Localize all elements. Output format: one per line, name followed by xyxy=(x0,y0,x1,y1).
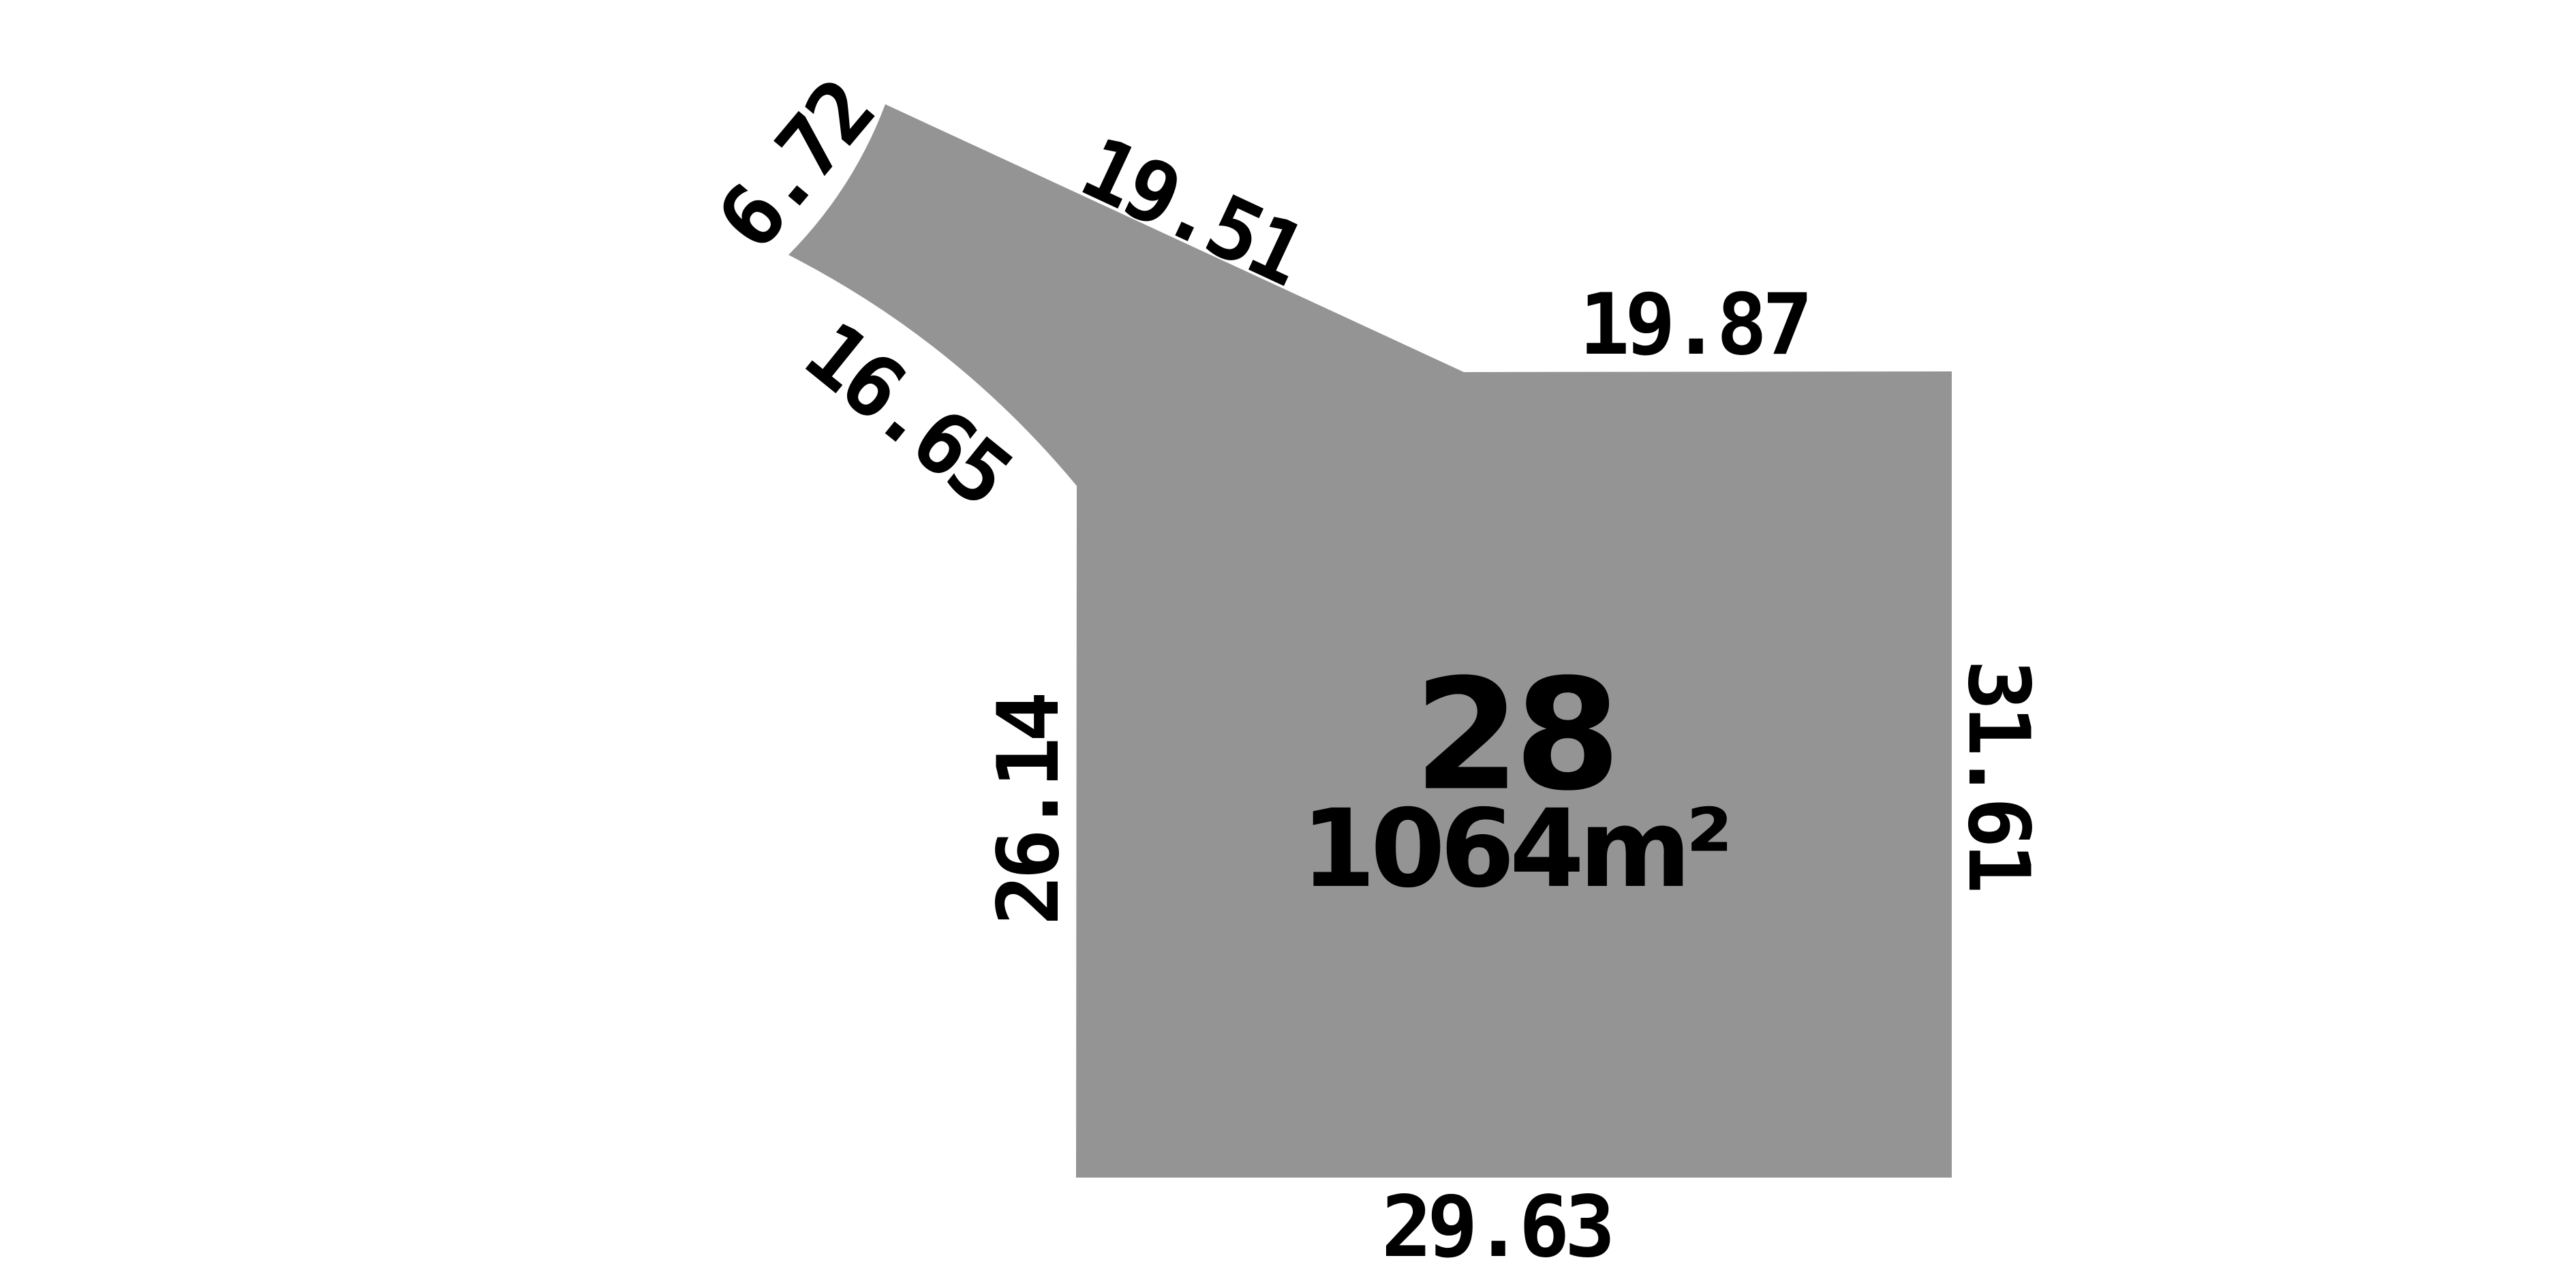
dimension-label-left: 26.14 xyxy=(987,696,1071,925)
dimension-label-top: 19.87 xyxy=(1579,283,1808,367)
lot-area-label: 1064m² xyxy=(1301,795,1728,903)
lot-diagram: 6.7219.5119.8716.6526.1431.6129.63 28 10… xyxy=(0,0,2576,1288)
dimension-label-bottom: 29.63 xyxy=(1381,1185,1610,1270)
dimension-label-right: 31.61 xyxy=(1956,660,2040,889)
lot-shape-svg xyxy=(0,0,2576,1288)
lot-polygon xyxy=(788,104,1952,1178)
